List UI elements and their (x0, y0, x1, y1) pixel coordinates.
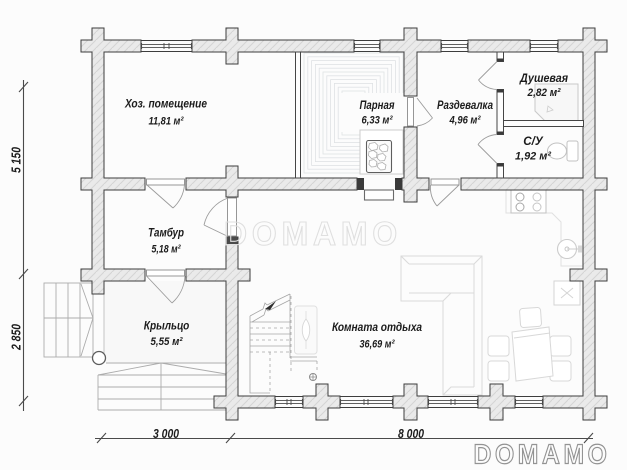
svg-text:1,92 м²: 1,92 м² (515, 151, 551, 163)
svg-text:С/У: С/У (523, 134, 543, 148)
svg-text:36,69 м²: 36,69 м² (360, 339, 395, 351)
svg-text:Хоз. помещение: Хоз. помещение (124, 97, 207, 111)
svg-text:5,55 м²: 5,55 м² (151, 336, 183, 348)
svg-text:Тамбур: Тамбур (148, 226, 184, 240)
svg-text:8 000: 8 000 (398, 427, 424, 441)
svg-text:11,81 м²: 11,81 м² (149, 116, 184, 128)
svg-text:Крыльцо: Крыльцо (144, 319, 190, 333)
svg-text:3 000: 3 000 (153, 427, 179, 441)
svg-text:5 150: 5 150 (10, 147, 24, 173)
svg-text:Парная: Парная (360, 98, 395, 112)
svg-text:Комната отдыха: Комната отдыха (332, 320, 422, 334)
svg-text:Раздевалка: Раздевалка (437, 98, 493, 112)
svg-text:5,18 м²: 5,18 м² (152, 244, 181, 256)
svg-text:DOMAMO: DOMAMO (224, 215, 402, 252)
svg-text:6,33 м²: 6,33 м² (362, 115, 393, 127)
svg-text:Душевая: Душевая (519, 71, 568, 85)
svg-text:DOMAMO: DOMAMO (474, 439, 611, 470)
svg-text:2,82 м²: 2,82 м² (527, 87, 561, 99)
svg-text:2 850: 2 850 (10, 324, 24, 351)
svg-text:4,96 м²: 4,96 м² (449, 115, 481, 127)
